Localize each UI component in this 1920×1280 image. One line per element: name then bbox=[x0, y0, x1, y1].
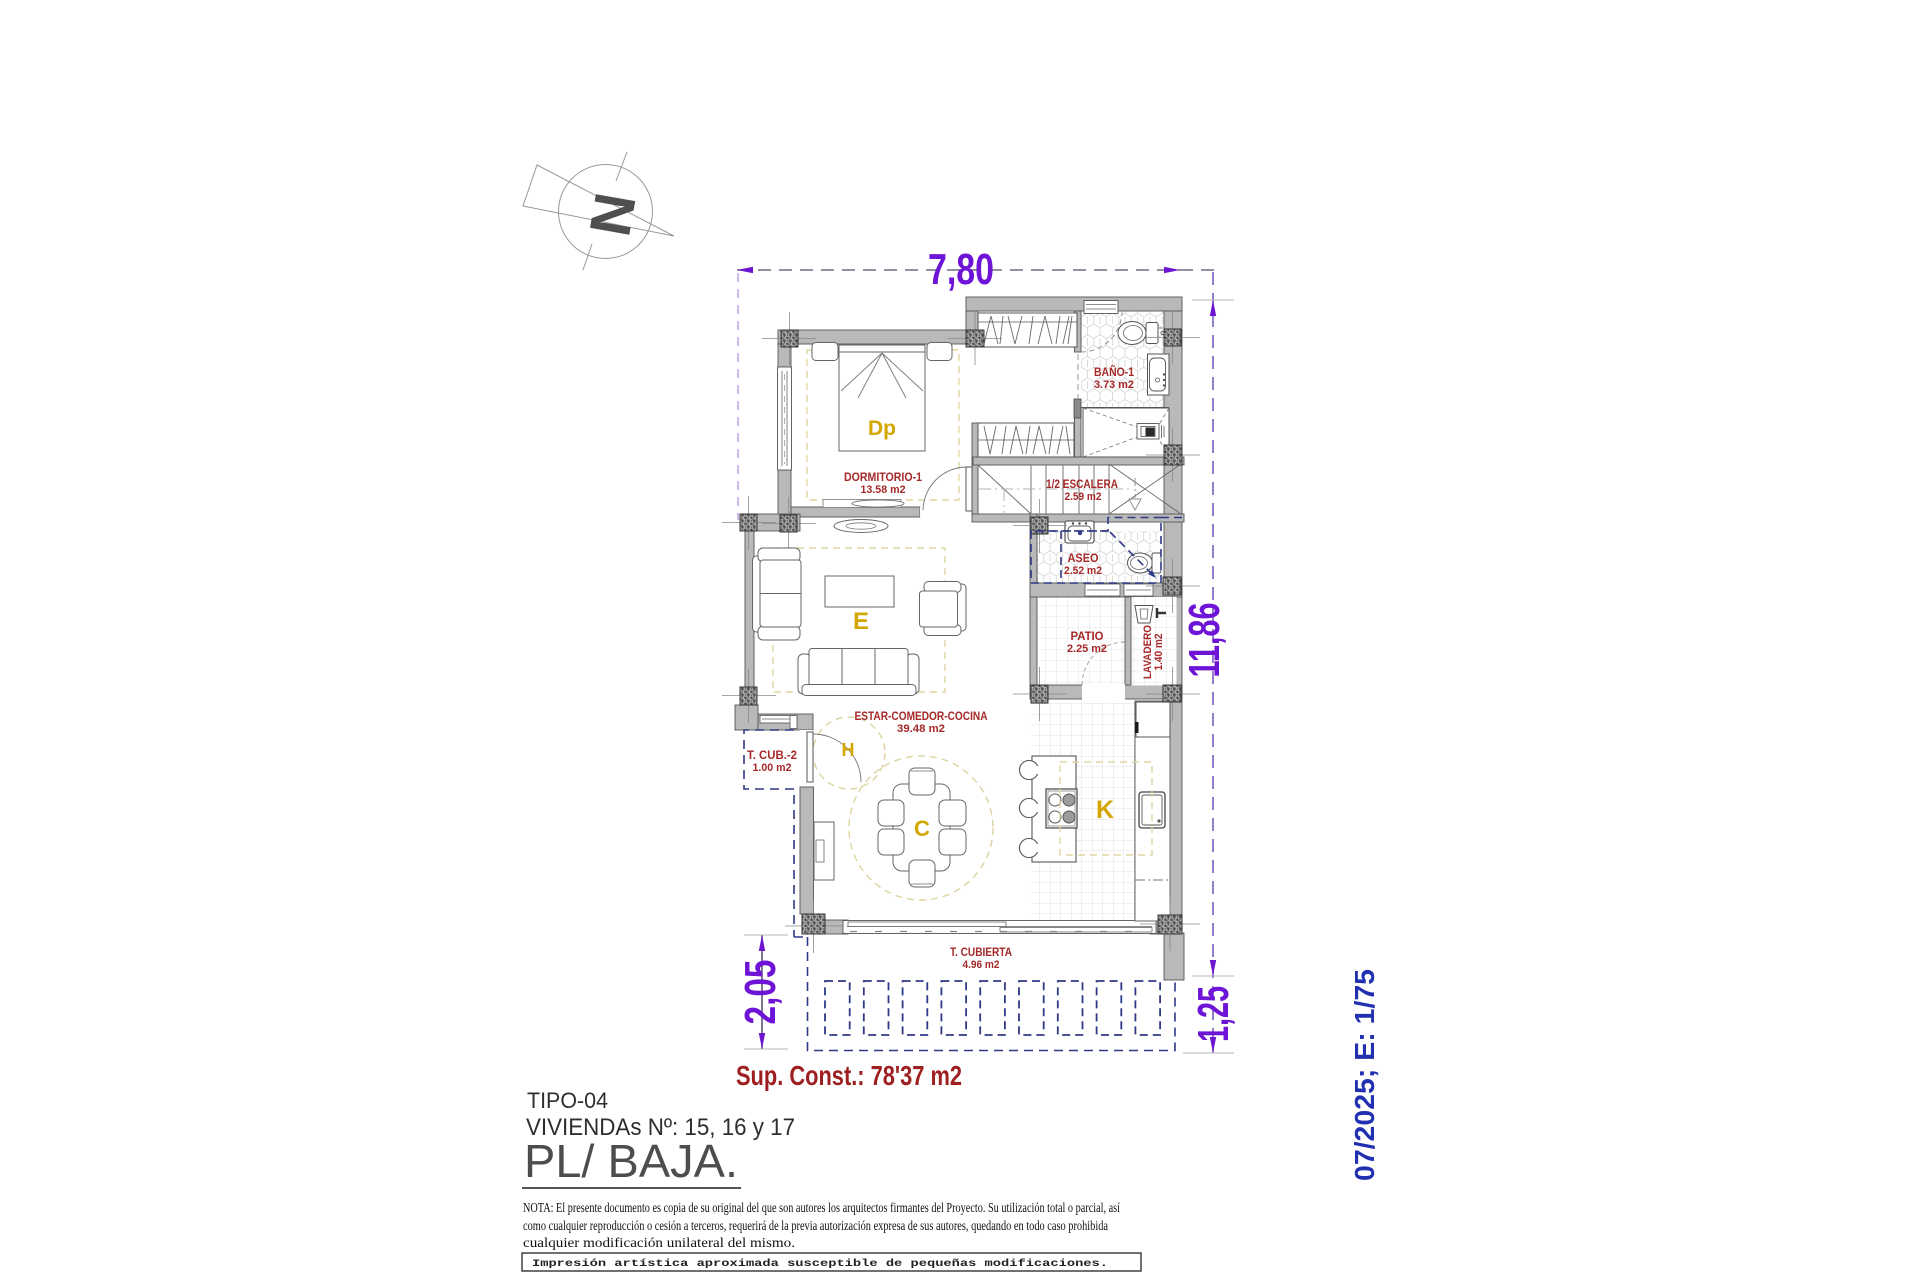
svg-text:2.52 m2: 2.52 m2 bbox=[1064, 565, 1102, 577]
svg-text:1/2 ESCALERA: 1/2 ESCALERA bbox=[1046, 479, 1118, 491]
svg-text:cualquier modificación unilate: cualquier modificación unilateral del mi… bbox=[523, 1235, 795, 1250]
svg-text:T. CUBIERTA: T. CUBIERTA bbox=[950, 947, 1012, 959]
svg-text:2.25 m2: 2.25 m2 bbox=[1067, 643, 1107, 655]
svg-text:11,86: 11,86 bbox=[1180, 603, 1229, 678]
svg-text:07/2025; E: 1/75: 07/2025; E: 1/75 bbox=[1349, 969, 1380, 1181]
svg-text:1,25: 1,25 bbox=[1189, 986, 1238, 1042]
svg-text:TIPO-04: TIPO-04 bbox=[527, 1088, 608, 1113]
svg-text:NOTA: El presente documento es: NOTA: El presente documento es copia de … bbox=[523, 1200, 1120, 1215]
svg-text:PL/ BAJA.: PL/ BAJA. bbox=[524, 1135, 738, 1187]
svg-text:Impresión artística aproxima: Impresión artística aproximada susceptib… bbox=[532, 1258, 1108, 1270]
svg-text:ESTAR-COMEDOR-COCINA: ESTAR-COMEDOR-COCINA bbox=[855, 711, 988, 723]
svg-text:C: C bbox=[914, 816, 930, 841]
svg-text:13.58 m2: 13.58 m2 bbox=[861, 484, 906, 496]
svg-text:ASEO: ASEO bbox=[1068, 553, 1099, 565]
svg-text:E: E bbox=[853, 608, 869, 635]
svg-text:T. CUB.-2: T. CUB.-2 bbox=[747, 750, 797, 762]
svg-text:Sup. Const.: 78'37 m2: Sup. Const.: 78'37 m2 bbox=[736, 1060, 962, 1091]
svg-text:DORMITORIO-1: DORMITORIO-1 bbox=[844, 472, 923, 484]
svg-text:4.96 m2: 4.96 m2 bbox=[963, 959, 1000, 971]
svg-text:K: K bbox=[1096, 796, 1114, 824]
svg-text:PATIO: PATIO bbox=[1071, 631, 1104, 643]
svg-text:7,80: 7,80 bbox=[928, 245, 994, 294]
svg-text:3.73 m2: 3.73 m2 bbox=[1094, 379, 1134, 391]
svg-text:Dp: Dp bbox=[868, 417, 896, 440]
svg-text:H: H bbox=[842, 740, 855, 760]
svg-text:1.40 m2: 1.40 m2 bbox=[1153, 634, 1165, 671]
svg-text:39.48 m2: 39.48 m2 bbox=[897, 723, 945, 735]
svg-text:BAÑO-1: BAÑO-1 bbox=[1094, 366, 1135, 379]
svg-text:2.59 m2: 2.59 m2 bbox=[1065, 491, 1102, 503]
svg-text:2,05: 2,05 bbox=[736, 960, 785, 1025]
svg-text:1.00 m2: 1.00 m2 bbox=[753, 762, 792, 774]
svg-text:como cualquier reproducción o: como cualquier reproducción o cesión a t… bbox=[523, 1218, 1108, 1233]
